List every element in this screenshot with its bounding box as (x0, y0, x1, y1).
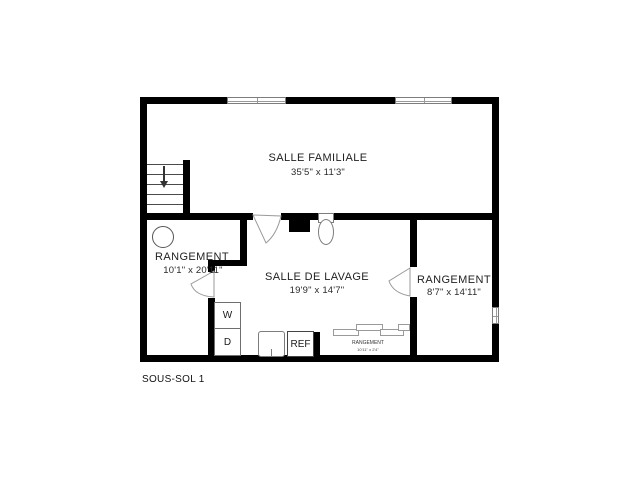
tub-drain-mark (271, 349, 272, 356)
window-top-left (227, 97, 286, 104)
stair-tread (147, 174, 183, 175)
dryer-label: D (224, 337, 231, 348)
stair-tread (147, 194, 183, 195)
floorplan-page: { "title": { "caption": "SOUS-SOL 1" }, … (0, 0, 640, 480)
water-heater-tank (318, 219, 334, 245)
room-dims-rangement-right: 8'7" x 14'11" (427, 287, 481, 298)
wall-lavage-upper-left (240, 213, 247, 266)
window-right-wall (492, 307, 499, 324)
room-label-rangement-closet: RANGEMENT (352, 340, 384, 346)
wall-right-vertical-lower (410, 297, 417, 362)
floor-plan: W D REF SALLE FAMILIALE 35'5" x 11'3" RA… (0, 0, 640, 480)
room-label-rangement-right: RANGEMENT (417, 274, 491, 286)
closet-shelf-segment (356, 324, 383, 331)
washer-box: W (214, 302, 241, 329)
door-swing-rangement-right (389, 268, 410, 296)
stair-tread (147, 164, 183, 165)
room-dims-salle-familiale: 35'5" x 11'3" (291, 167, 345, 178)
stair-direction-arrow (163, 166, 165, 181)
wall-mid-horizontal-left (140, 213, 253, 220)
wall-bottom (140, 355, 499, 362)
plan-caption: SOUS-SOL 1 (142, 374, 205, 385)
fridge-label: REF (291, 339, 311, 350)
room-dims-salle-de-lavage: 19'9" x 14'7" (290, 285, 345, 296)
wall-stairs (183, 160, 190, 220)
stair-tread (147, 204, 183, 205)
room-label-rangement-left: RANGEMENT (155, 251, 229, 263)
room-dims-rangement-left: 10'1" x 20'11" (163, 265, 222, 276)
window-pane-divider (257, 98, 258, 103)
window-pane-divider (493, 316, 498, 317)
laundry-tub (258, 331, 285, 357)
window-pane-divider (424, 98, 425, 103)
washer-label: W (223, 310, 232, 321)
room-dims-rangement-closet: 10'11" x 2'4" (357, 347, 379, 352)
stair-arrow-head-icon (160, 181, 168, 188)
column-circle (152, 226, 174, 248)
door-swing-familiale-lavage (253, 215, 281, 243)
window-top-right (395, 97, 452, 104)
dryer-box: D (214, 328, 241, 356)
wall-right-vertical-upper (410, 213, 417, 267)
fridge-box: REF (287, 331, 314, 357)
wall-left (140, 97, 147, 362)
room-label-salle-familiale: SALLE FAMILIALE (269, 152, 368, 164)
wall-mid-horizontal-right (281, 213, 492, 220)
room-label-salle-de-lavage: SALLE DE LAVAGE (265, 271, 369, 283)
closet-shelf-segment (398, 324, 410, 331)
chimney-block (289, 213, 310, 232)
